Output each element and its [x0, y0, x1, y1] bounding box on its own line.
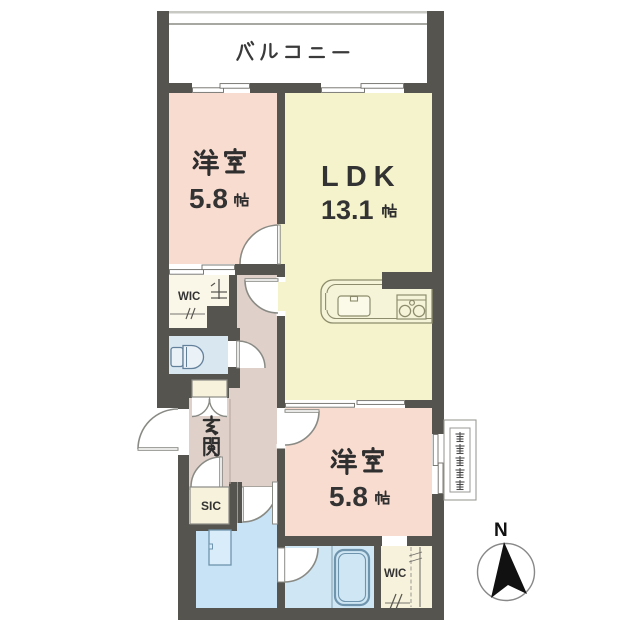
svg-text:SIC: SIC [201, 499, 221, 513]
svg-text:5.8: 5.8 [329, 481, 368, 512]
svg-text:LDK: LDK [321, 161, 402, 193]
svg-text:WIC: WIC [384, 568, 406, 580]
svg-text:N: N [494, 520, 508, 541]
svg-text:WIC: WIC [178, 291, 200, 303]
svg-text:13.1: 13.1 [321, 195, 374, 225]
svg-text:5.8: 5.8 [189, 183, 228, 214]
